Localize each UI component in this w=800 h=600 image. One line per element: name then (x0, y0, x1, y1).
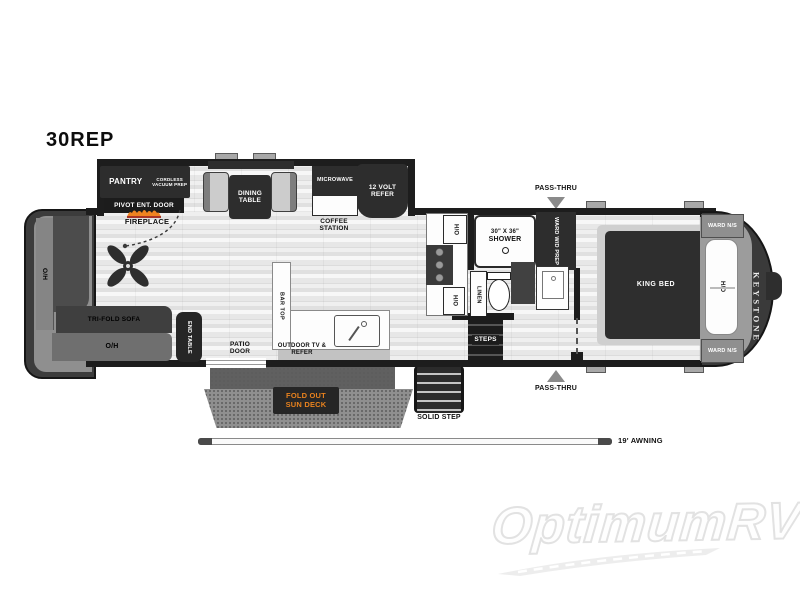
patio-door-opening (206, 358, 266, 368)
sink-faucet-handle (348, 326, 359, 341)
wardrobe-washer-dryer-prep: WARD W/D PREP (536, 212, 576, 270)
linen-cabinet: LINEN (470, 271, 487, 318)
road-swoosh-icon (494, 546, 724, 578)
twelve-volt-refrigerator-label: 12 VOLT REFER (365, 184, 401, 199)
steps-label: STEPS (472, 335, 498, 344)
overhead-cabinet-sofa-label: O/H (105, 343, 118, 351)
fireplace-label: FIREPLACE (119, 218, 175, 227)
rv-floorplan-page: 30REP FOLD OUT SUN DECK SOLID STEP PASS-… (0, 0, 800, 600)
vanity-faucet-dot (551, 276, 556, 281)
awning-label: 19' AWNING (618, 437, 682, 446)
ward-ns-top-label: WARD N/S (708, 223, 738, 229)
dining-table: DINING TABLE (229, 175, 271, 219)
microwave-label: MICROWAVE (317, 177, 353, 183)
ward-ns-bottom-label: WARD N/S (708, 348, 738, 354)
floorplan-model-title: 30REP (46, 129, 114, 152)
hutch-overhead-top-label: H/O (452, 224, 459, 235)
king-bed-label: KING BED (637, 281, 675, 289)
dining-slide-rail (208, 161, 294, 169)
sofa-back-vertical (53, 216, 89, 312)
fold-out-sun-deck-label: FOLD OUT SUN DECK (279, 392, 333, 409)
linen-label: LINEN (475, 286, 481, 304)
coffee-station-cabinet (312, 195, 358, 216)
ceiling-fan-icon (102, 240, 154, 292)
pantry-label: PANTRY (100, 177, 151, 186)
wardrobe-nightstand-bottom: WARD N/S (701, 339, 744, 363)
hutch-overhead-bottom-label: H/O (451, 295, 458, 306)
vanity-sink-icon (542, 271, 564, 299)
cordless-vacuum-prep-label: CORDLESS VACUUM PREP (151, 177, 190, 187)
toilet-icon (488, 279, 510, 311)
pantry-cabinet: PANTRY CORDLESS VACUUM PREP (100, 166, 190, 198)
overhead-cabinet-rear: O/H (36, 218, 54, 330)
pass-thru-arrow-up-icon (547, 370, 565, 382)
dining-bench-right (271, 172, 297, 212)
wardrobe-nightstand-top: WARD N/S (701, 214, 744, 238)
dining-bench-left (203, 172, 229, 212)
shower-drain-icon (502, 247, 509, 254)
keystone-brand-label: KEYSTONE (751, 272, 761, 343)
bar-top-label: BAR TOP (278, 292, 284, 320)
awning-end-cap-right (598, 438, 612, 445)
kitchen-sink-icon (334, 315, 380, 347)
shower-label: SHOWER (489, 236, 522, 244)
end-table: END TABLE (176, 312, 202, 362)
bathroom-cabinet (511, 262, 535, 304)
range-cooktop-icon (426, 245, 453, 285)
sink-faucet-dot (361, 321, 367, 327)
hitch-pin (766, 272, 782, 300)
shower: 30" X 36" SHOWER (474, 215, 536, 268)
shower-size-label: 30" X 36" (491, 229, 519, 236)
bed-headboard-overhead: H/O (705, 239, 738, 335)
overhead-cabinet-sofa: O/H (52, 333, 172, 361)
kitchen-hutch-overhead-bottom: H/O (443, 287, 465, 315)
ward-wd-prep-label: WARD W/D PREP (553, 216, 559, 266)
microwave: MICROWAVE (312, 166, 358, 195)
outdoor-tv-refer-label: OUTDOOR TV & REFER (272, 343, 332, 357)
king-bed: KING BED (605, 231, 707, 339)
kitchen-hutch-overhead-top: H/O (443, 215, 467, 244)
interior-steps: STEPS (468, 316, 503, 364)
end-table-label: END TABLE (186, 321, 192, 354)
bar-top-counter-upper: BAR TOP (272, 262, 291, 350)
keystone-brand: KEYSTONE (748, 246, 763, 370)
solid-step-label: SOLID STEP (405, 414, 473, 422)
coffee-station-label: COFFEE STATION (308, 218, 360, 233)
tri-fold-sofa: TRI-FOLD SOFA (56, 306, 172, 333)
fold-out-sun-deck-badge: FOLD OUT SUN DECK (273, 387, 339, 414)
tri-fold-sofa-label: TRI-FOLD SOFA (88, 316, 140, 323)
pass-thru-top-label: PASS-THRU (530, 185, 582, 193)
awning-bar (198, 438, 612, 445)
awning-end-cap-left (198, 438, 212, 445)
bedroom-door-swing-line (576, 318, 578, 354)
pass-thru-bottom-label: PASS-THRU (530, 385, 582, 393)
pillow-divider (710, 287, 735, 289)
patio-door-label: PATIO DOOR (221, 341, 259, 356)
wall-segment-bedroom-divider (574, 268, 580, 320)
solid-step (414, 366, 464, 413)
dining-table-label: DINING TABLE (235, 190, 265, 205)
bathroom-vanity (536, 266, 569, 310)
twelve-volt-refrigerator: 12 VOLT REFER (357, 164, 408, 218)
overhead-cabinet-rear-label: O/H (41, 268, 48, 280)
